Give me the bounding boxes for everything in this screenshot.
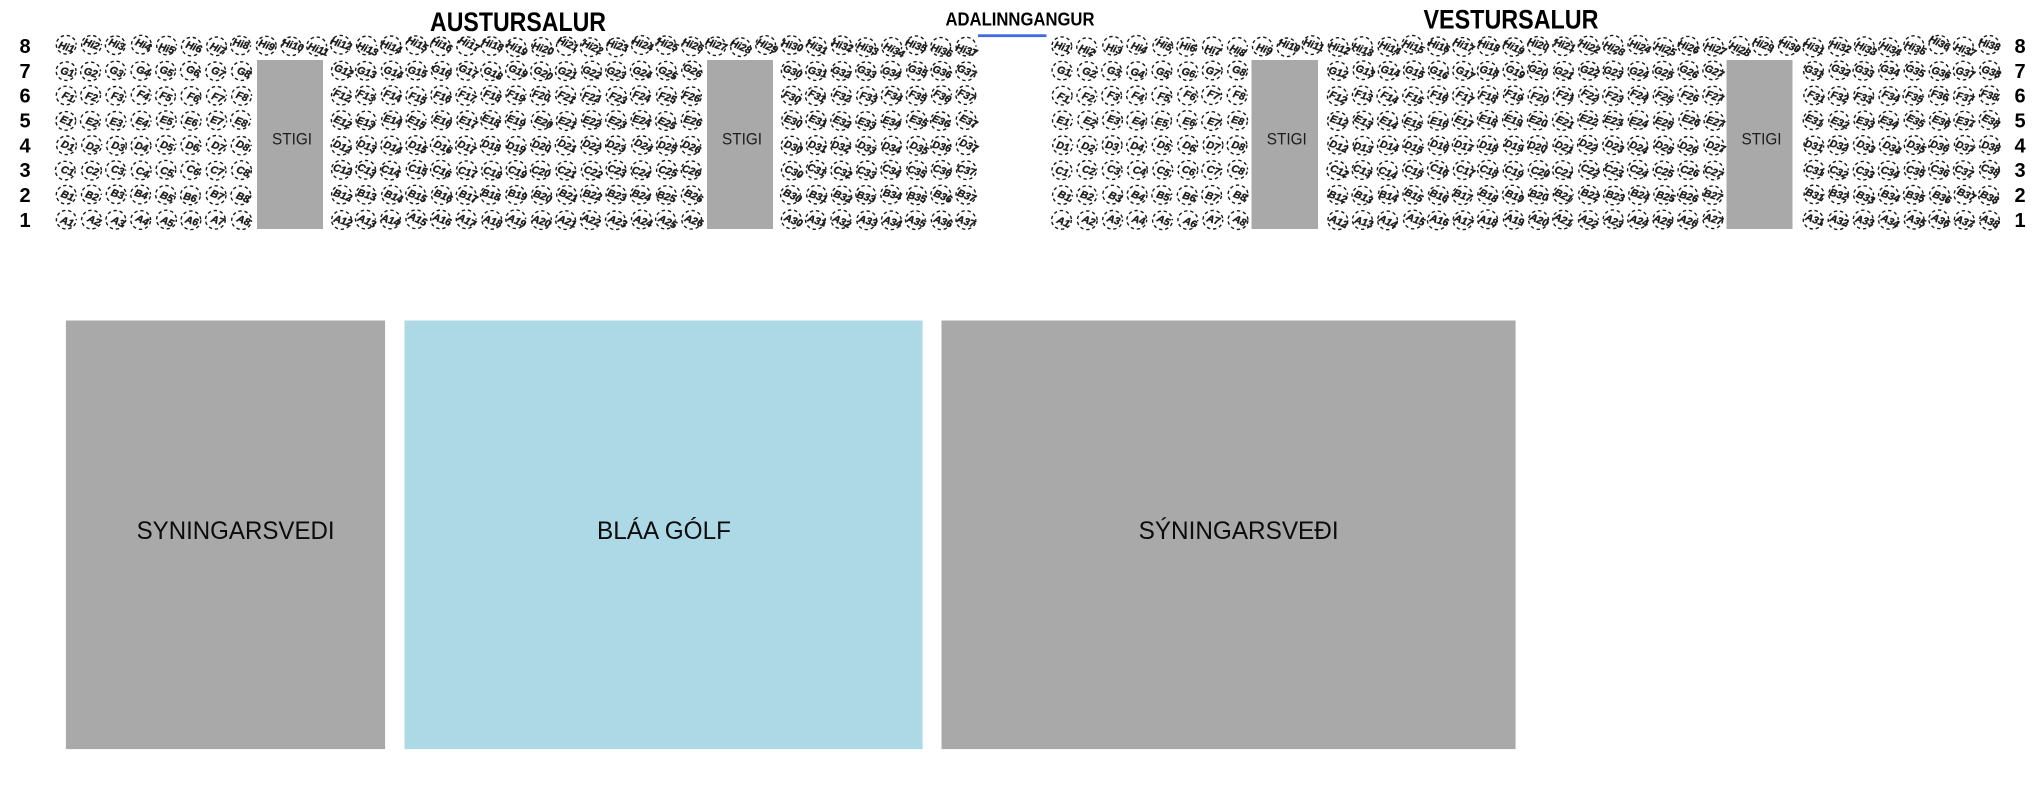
svg-text:G5: G5 xyxy=(158,65,175,80)
svg-text:A36: A36 xyxy=(1928,212,1951,230)
svg-text:A21: A21 xyxy=(555,214,578,231)
svg-text:B25: B25 xyxy=(655,190,676,206)
svg-text:D19: D19 xyxy=(1503,138,1525,155)
svg-text:G27: G27 xyxy=(1703,63,1726,81)
svg-text:Hi7: Hi7 xyxy=(1203,44,1223,59)
svg-text:B6: B6 xyxy=(1181,191,1197,205)
svg-text:F32: F32 xyxy=(832,89,853,105)
svg-text:B26: B26 xyxy=(682,188,704,206)
svg-text:C7: C7 xyxy=(1205,164,1222,179)
svg-text:B14: B14 xyxy=(1377,189,1398,205)
svg-text:Hi31: Hi31 xyxy=(1801,39,1826,58)
svg-text:A17: A17 xyxy=(1452,213,1476,231)
svg-text:D35: D35 xyxy=(908,140,930,158)
svg-text:C2: C2 xyxy=(84,164,100,179)
svg-text:F35: F35 xyxy=(1904,90,1925,106)
svg-text:Hi13: Hi13 xyxy=(355,41,380,59)
svg-text:E8: E8 xyxy=(233,115,249,130)
svg-text:A26: A26 xyxy=(1676,213,1699,230)
svg-text:A38: A38 xyxy=(1978,213,2001,231)
svg-text:D35: D35 xyxy=(1905,139,1927,157)
svg-text:Hi22: Hi22 xyxy=(580,38,605,57)
svg-text:D13: D13 xyxy=(1352,141,1373,157)
svg-text:C35: C35 xyxy=(906,164,928,181)
svg-text:C13: C13 xyxy=(1351,163,1373,181)
svg-text:B33: B33 xyxy=(855,190,877,206)
svg-text:Hi25: Hi25 xyxy=(655,36,680,54)
svg-text:STIGI: STIGI xyxy=(1742,130,1782,149)
svg-text:Hi4: Hi4 xyxy=(1129,41,1148,57)
svg-text:A4: A4 xyxy=(133,213,151,229)
svg-text:Hi15: Hi15 xyxy=(1401,38,1426,56)
svg-text:STIGI: STIGI xyxy=(272,130,312,149)
svg-text:STIGI: STIGI xyxy=(722,130,762,149)
svg-text:8: 8 xyxy=(19,36,30,58)
svg-text:E24: E24 xyxy=(1628,115,1649,131)
svg-text:B5: B5 xyxy=(1155,190,1171,205)
svg-text:F1: F1 xyxy=(60,90,76,105)
svg-text:Hi14: Hi14 xyxy=(1377,40,1402,58)
svg-text:C24: C24 xyxy=(630,165,652,182)
svg-text:A12: A12 xyxy=(331,213,353,229)
svg-text:E20: E20 xyxy=(533,114,554,131)
svg-text:D31: D31 xyxy=(1803,139,1825,155)
svg-text:E34: E34 xyxy=(881,115,902,131)
svg-text:3: 3 xyxy=(2014,160,2025,182)
svg-text:C26: C26 xyxy=(680,163,702,180)
svg-text:F7: F7 xyxy=(1205,89,1221,104)
svg-text:A2: A2 xyxy=(84,213,102,229)
svg-text:G34: G34 xyxy=(881,65,903,81)
svg-text:Hi3: Hi3 xyxy=(1105,42,1124,57)
svg-text:E26: E26 xyxy=(1680,113,1701,129)
svg-text:A34: A34 xyxy=(881,214,903,230)
svg-text:4: 4 xyxy=(2014,135,2026,157)
svg-text:C20: C20 xyxy=(1529,165,1550,181)
svg-text:Hi8: Hi8 xyxy=(231,37,250,52)
svg-text:F2: F2 xyxy=(1080,91,1096,106)
svg-text:B16: B16 xyxy=(1428,188,1450,206)
svg-text:E34: E34 xyxy=(1878,114,1899,131)
svg-text:A25: A25 xyxy=(1651,213,1674,230)
svg-text:Hi9: Hi9 xyxy=(1255,42,1274,58)
svg-text:E33: E33 xyxy=(1855,115,1876,131)
svg-text:E22: E22 xyxy=(581,114,602,130)
svg-text:G25: G25 xyxy=(1653,65,1675,82)
svg-text:Hi7: Hi7 xyxy=(208,41,228,58)
svg-text:G19: G19 xyxy=(506,63,529,81)
svg-text:VESTURSALUR: VESTURSALUR xyxy=(1424,5,1599,35)
svg-text:D14: D14 xyxy=(382,140,404,157)
svg-text:D13: D13 xyxy=(356,138,378,155)
svg-text:A18: A18 xyxy=(1476,214,1498,230)
svg-text:D2: D2 xyxy=(1080,141,1096,156)
svg-text:D26: D26 xyxy=(680,139,702,156)
svg-text:SÝNINGARSVEÐI: SÝNINGARSVEÐI xyxy=(1139,516,1339,545)
svg-text:F7: F7 xyxy=(210,91,227,106)
svg-text:D21: D21 xyxy=(556,138,578,156)
svg-text:Hi29: Hi29 xyxy=(755,37,780,56)
svg-text:A1: A1 xyxy=(58,215,75,230)
svg-text:E25: E25 xyxy=(1653,115,1674,131)
svg-text:A22: A22 xyxy=(579,212,602,229)
svg-text:D33: D33 xyxy=(856,140,878,158)
svg-text:Hi34: Hi34 xyxy=(882,41,907,61)
svg-text:D15: D15 xyxy=(1403,140,1425,157)
svg-text:F8: F8 xyxy=(234,90,249,105)
svg-text:STIGI: STIGI xyxy=(1267,130,1307,149)
svg-text:E27: E27 xyxy=(1705,115,1727,132)
svg-text:8: 8 xyxy=(2014,36,2025,58)
svg-text:A35: A35 xyxy=(904,214,927,231)
svg-text:F12: F12 xyxy=(1327,90,1348,107)
svg-text:B1: B1 xyxy=(1056,189,1073,205)
svg-text:A19: A19 xyxy=(505,212,528,230)
svg-text:E2: E2 xyxy=(84,116,100,131)
svg-text:F24: F24 xyxy=(631,89,651,105)
svg-text:D8: D8 xyxy=(234,139,251,155)
svg-text:E4: E4 xyxy=(134,115,150,130)
svg-text:Hi29: Hi29 xyxy=(1751,37,1776,55)
svg-text:Hi34: Hi34 xyxy=(1878,40,1903,59)
svg-text:D37: D37 xyxy=(957,138,980,156)
svg-text:Hi6: Hi6 xyxy=(1178,40,1197,55)
svg-text:G8: G8 xyxy=(1230,64,1247,79)
svg-text:7: 7 xyxy=(19,61,30,83)
svg-text:7: 7 xyxy=(2014,61,2025,83)
svg-text:G32: G32 xyxy=(830,65,852,82)
svg-text:D23: D23 xyxy=(605,139,627,156)
svg-text:E24: E24 xyxy=(631,114,652,129)
svg-text:2: 2 xyxy=(19,185,30,207)
svg-text:G17: G17 xyxy=(457,63,480,81)
svg-text:F20: F20 xyxy=(1529,91,1549,107)
svg-text:1: 1 xyxy=(19,210,30,232)
svg-text:B20: B20 xyxy=(532,189,554,206)
svg-text:Hi5: Hi5 xyxy=(157,42,176,57)
svg-text:G21: G21 xyxy=(556,65,578,82)
svg-text:A5: A5 xyxy=(158,214,176,230)
svg-text:E14: E14 xyxy=(382,113,403,129)
svg-text:E12: E12 xyxy=(332,114,354,132)
svg-text:D26: D26 xyxy=(1678,140,1700,157)
svg-text:A32: A32 xyxy=(830,213,853,231)
svg-text:B30: B30 xyxy=(781,187,803,205)
svg-text:Hi31: Hi31 xyxy=(804,38,829,58)
svg-text:F33: F33 xyxy=(1853,91,1873,107)
svg-text:E15: E15 xyxy=(406,114,428,132)
svg-text:F8: F8 xyxy=(1231,89,1246,103)
svg-text:E32: E32 xyxy=(1829,115,1850,132)
svg-text:C15: C15 xyxy=(1403,163,1425,180)
svg-text:D20: D20 xyxy=(1527,140,1548,156)
svg-text:G37: G37 xyxy=(1954,66,1977,82)
svg-text:C20: C20 xyxy=(530,165,551,181)
svg-text:C30: C30 xyxy=(783,164,805,182)
svg-text:G16: G16 xyxy=(430,63,452,80)
svg-text:B4: B4 xyxy=(133,188,149,203)
svg-text:C18: C18 xyxy=(1478,163,1500,180)
svg-text:E1: E1 xyxy=(58,114,74,129)
svg-text:G12: G12 xyxy=(1327,65,1349,81)
svg-text:Hi37: Hi37 xyxy=(1953,42,1978,60)
svg-text:Hi13: Hi13 xyxy=(1350,42,1375,60)
svg-text:Hi10: Hi10 xyxy=(1277,38,1301,56)
svg-text:A24: A24 xyxy=(1627,213,1649,229)
svg-text:B24: B24 xyxy=(1629,188,1651,204)
svg-text:G31: G31 xyxy=(1803,63,1825,81)
svg-text:Hi25: Hi25 xyxy=(1653,41,1677,59)
svg-text:E13: E13 xyxy=(1352,113,1374,131)
svg-text:D16: D16 xyxy=(1429,138,1451,154)
svg-text:AUSTURSALUR: AUSTURSALUR xyxy=(430,7,606,37)
svg-text:C34: C34 xyxy=(880,163,902,181)
svg-text:F18: F18 xyxy=(1478,89,1499,105)
svg-text:E15: E15 xyxy=(1402,116,1423,133)
svg-text:F36: F36 xyxy=(931,88,952,106)
svg-text:E5: E5 xyxy=(158,114,174,128)
svg-text:Hi4: Hi4 xyxy=(133,37,152,54)
svg-text:B2: B2 xyxy=(84,189,100,204)
svg-text:E6: E6 xyxy=(1181,116,1196,130)
svg-text:G3: G3 xyxy=(108,65,125,81)
svg-text:A18: A18 xyxy=(481,213,504,230)
svg-text:C14: C14 xyxy=(379,164,401,180)
svg-text:SYNINGARSVEDI: SYNINGARSVEDI xyxy=(137,517,335,545)
svg-text:F5: F5 xyxy=(1156,91,1171,105)
svg-text:E8: E8 xyxy=(1230,114,1245,128)
svg-text:D3: D3 xyxy=(1104,140,1120,154)
svg-text:F19: F19 xyxy=(505,88,526,105)
svg-text:B35: B35 xyxy=(906,190,927,206)
svg-text:F6: F6 xyxy=(185,91,201,106)
svg-text:E21: E21 xyxy=(557,115,578,132)
svg-text:A27: A27 xyxy=(1702,212,1725,229)
svg-text:B26: B26 xyxy=(1678,189,1700,205)
svg-text:E1: E1 xyxy=(1055,115,1071,130)
svg-text:D19: D19 xyxy=(505,140,527,156)
svg-text:B31: B31 xyxy=(807,189,829,206)
svg-text:G4: G4 xyxy=(134,64,151,79)
svg-text:B33: B33 xyxy=(1854,189,1876,207)
svg-text:4: 4 xyxy=(19,135,31,157)
svg-text:F21: F21 xyxy=(1555,89,1576,105)
svg-text:E18: E18 xyxy=(1477,113,1498,129)
svg-text:3: 3 xyxy=(19,160,30,182)
svg-text:Hi1: Hi1 xyxy=(57,40,76,55)
svg-text:A34: A34 xyxy=(1878,212,1901,231)
svg-text:Hi23: Hi23 xyxy=(1602,40,1627,59)
svg-text:Hi22: Hi22 xyxy=(1577,38,1602,57)
svg-text:G36: G36 xyxy=(1930,65,1952,82)
svg-text:D32: D32 xyxy=(830,139,852,155)
svg-text:A37: A37 xyxy=(954,214,978,231)
svg-text:G17: G17 xyxy=(1454,65,1477,84)
svg-text:Hi16: Hi16 xyxy=(1427,38,1451,56)
svg-text:Hi15: Hi15 xyxy=(405,35,430,55)
svg-text:A23: A23 xyxy=(1602,213,1625,231)
svg-text:D27: D27 xyxy=(1705,140,1728,157)
svg-text:E23: E23 xyxy=(607,114,628,131)
svg-text:G6: G6 xyxy=(1180,66,1197,81)
svg-text:C25: C25 xyxy=(1653,165,1674,181)
svg-text:E7: E7 xyxy=(1206,116,1223,131)
svg-text:5: 5 xyxy=(19,111,30,133)
svg-text:E33: E33 xyxy=(856,116,877,132)
svg-text:F22: F22 xyxy=(581,91,601,106)
svg-text:A22: A22 xyxy=(1577,213,1600,231)
svg-text:6: 6 xyxy=(19,86,30,108)
svg-text:E3: E3 xyxy=(1106,113,1122,128)
svg-text:D2: D2 xyxy=(84,140,100,155)
svg-text:6: 6 xyxy=(2014,86,2025,108)
svg-text:F5: F5 xyxy=(158,90,173,105)
svg-text:ADALINNGANGUR: ADALINNGANGUR xyxy=(946,9,1095,29)
svg-text:F27: F27 xyxy=(1704,89,1726,106)
svg-text:Hi19: Hi19 xyxy=(1501,38,1526,58)
svg-text:C23: C23 xyxy=(1602,163,1624,181)
svg-text:B5: B5 xyxy=(158,190,175,205)
svg-text:A20: A20 xyxy=(529,213,552,230)
svg-text:B34: B34 xyxy=(881,188,902,204)
svg-text:Hi23: Hi23 xyxy=(605,38,629,55)
svg-text:E13: E13 xyxy=(355,115,376,131)
svg-text:G23: G23 xyxy=(605,65,627,82)
svg-text:Hi35: Hi35 xyxy=(904,38,928,56)
svg-text:5: 5 xyxy=(2014,111,2025,133)
svg-text:E18: E18 xyxy=(480,113,501,130)
svg-text:1: 1 xyxy=(2014,210,2025,232)
svg-text:D1: D1 xyxy=(1055,140,1071,154)
svg-text:D24: D24 xyxy=(632,137,654,155)
svg-text:G8: G8 xyxy=(235,66,252,81)
svg-text:C25: C25 xyxy=(657,164,678,180)
svg-text:2: 2 xyxy=(2014,185,2025,207)
svg-text:Hi8: Hi8 xyxy=(1228,43,1247,60)
svg-text:Hi2: Hi2 xyxy=(1077,43,1096,59)
svg-text:C8: C8 xyxy=(1230,163,1246,178)
svg-text:G23: G23 xyxy=(1602,65,1624,82)
svg-text:G20: G20 xyxy=(532,65,555,83)
svg-text:C2: C2 xyxy=(1081,164,1097,179)
svg-text:F30: F30 xyxy=(781,89,802,106)
svg-text:E3: E3 xyxy=(108,116,123,130)
svg-text:A3: A3 xyxy=(1104,213,1121,228)
svg-text:BLÁA GÓLF: BLÁA GÓLF xyxy=(597,516,731,545)
svg-text:A14: A14 xyxy=(379,213,402,230)
svg-text:Hi30: Hi30 xyxy=(1777,38,1802,56)
svg-text:B19: B19 xyxy=(507,188,528,204)
svg-text:A5: A5 xyxy=(1154,213,1172,229)
svg-text:Hi28: Hi28 xyxy=(728,38,753,57)
svg-text:A23: A23 xyxy=(606,213,629,230)
svg-text:Hi17: Hi17 xyxy=(1451,37,1476,56)
svg-text:E2: E2 xyxy=(1082,115,1098,130)
svg-text:D5: D5 xyxy=(158,139,174,154)
svg-text:B8: B8 xyxy=(1232,189,1249,204)
svg-text:Hi12: Hi12 xyxy=(329,36,353,53)
svg-text:C8: C8 xyxy=(235,165,252,180)
svg-text:B2: B2 xyxy=(1079,189,1095,204)
svg-text:C1: C1 xyxy=(1054,165,1070,180)
svg-text:F15: F15 xyxy=(407,91,428,108)
